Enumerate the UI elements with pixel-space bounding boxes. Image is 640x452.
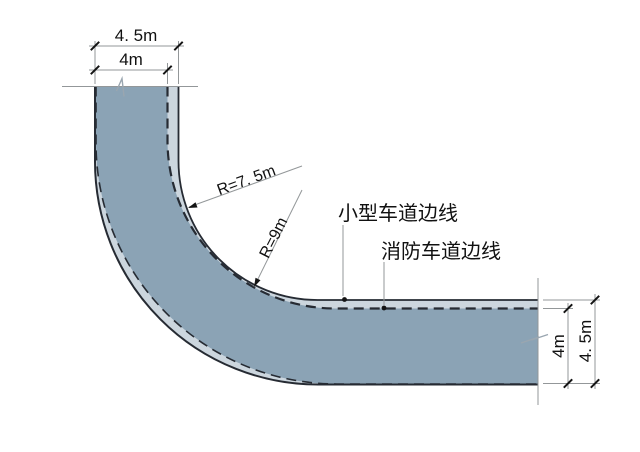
callout-label-car-lane-edge: 小型车道边线 <box>338 202 458 225</box>
callout-dot-fire-lane-edge <box>382 306 387 311</box>
callout-label-fire-lane-edge: 消防车道边线 <box>381 240 501 263</box>
road-diagram-canvas: 4. 5m 4m 4m 4. 5m R=7. 5m R=9m 小型车道边线 消防… <box>0 0 640 452</box>
dimension-label-right-outer: 4. 5m <box>576 320 595 363</box>
dimension-label-top-inner: 4m <box>119 50 143 69</box>
radius-label-fire-lane: R=9m <box>257 215 292 261</box>
fire-lane-surface <box>96 87 538 385</box>
diagram-page: 4. 5m 4m 4m 4. 5m R=7. 5m R=9m 小型车道边线 消防… <box>0 0 640 452</box>
radius-arrowhead <box>188 202 198 208</box>
callout-dot-car-lane-edge <box>342 297 347 302</box>
dimension-label-right-inner: 4m <box>549 334 568 358</box>
dimension-label-top-outer: 4. 5m <box>115 26 158 45</box>
radius-label-car-lane: R=7. 5m <box>215 162 278 199</box>
